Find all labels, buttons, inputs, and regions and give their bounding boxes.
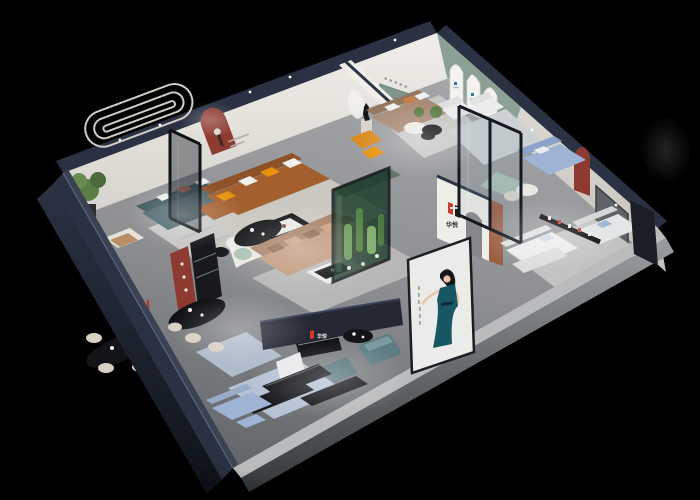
showroom-render: 华悦 华悦 [0, 0, 700, 500]
vignette [0, 0, 700, 500]
isometric-scene: 华悦 华悦 [0, 0, 700, 500]
